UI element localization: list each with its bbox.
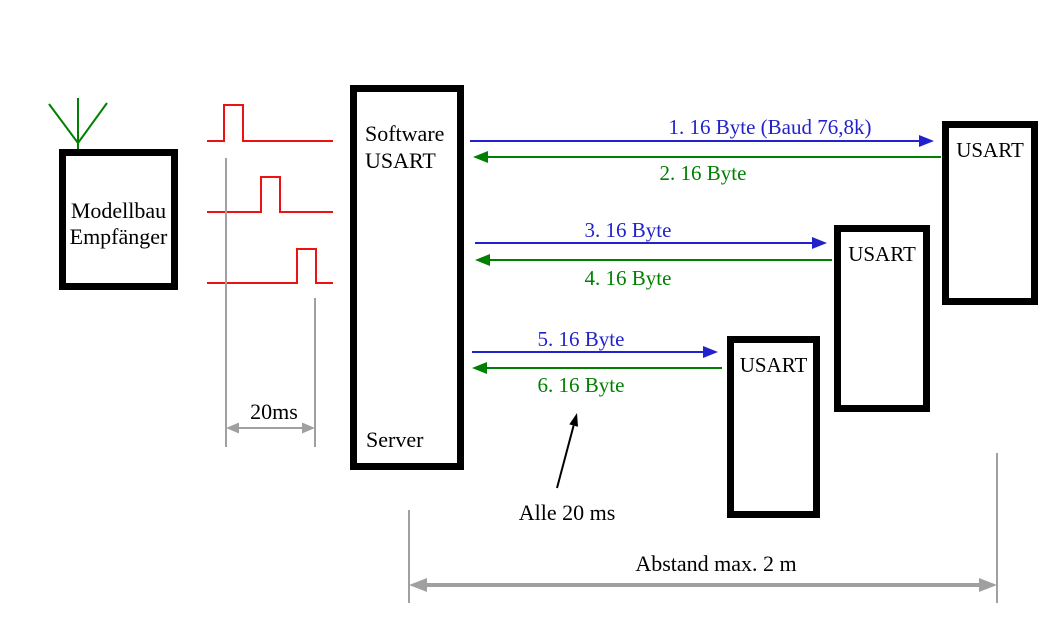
antenna-icon xyxy=(49,98,107,153)
message-label-2: 2. 16 Byte xyxy=(660,161,747,186)
distance-measure xyxy=(409,453,997,603)
receiver-label: Modellbau Empfänger xyxy=(70,190,168,250)
message-label-5: 5. 16 Byte xyxy=(538,327,625,352)
receiver-box: Modellbau Empfänger xyxy=(59,149,178,290)
usart-box-3: USART xyxy=(727,336,820,518)
usart-box-2: USART xyxy=(834,225,930,412)
diagram-canvas: Modellbau Empfänger Software USART Serve… xyxy=(0,0,1053,634)
server-box: Software USART Server xyxy=(350,85,464,470)
usart-box-3-label: USART xyxy=(734,343,813,378)
server-top-label: Software USART xyxy=(365,120,444,174)
arrow-right-head-icon xyxy=(979,578,997,592)
server-label-line1: Software xyxy=(365,121,444,146)
message-arrow-4 xyxy=(475,254,832,266)
distance-label: Abstand max. 2 m xyxy=(635,551,796,577)
receiver-label-line1: Modellbau xyxy=(71,198,166,223)
receiver-label-line2: Empfänger xyxy=(70,224,168,249)
pulse-interval-label: 20ms xyxy=(250,399,298,425)
message-label-4: 4. 16 Byte xyxy=(585,266,672,291)
usart-box-1-label: USART xyxy=(949,128,1031,163)
message-label-1: 1. 16 Byte (Baud 76,8k) xyxy=(669,115,872,140)
cycle-annotation-arrow xyxy=(557,413,578,488)
server-bottom-label: Server xyxy=(366,427,423,453)
pulse-waveform-1 xyxy=(207,105,333,141)
usart-box-1: USART xyxy=(942,121,1038,305)
arrow-right-head-icon xyxy=(302,423,315,434)
message-label-6: 6. 16 Byte xyxy=(538,373,625,398)
arrow-left-head-icon xyxy=(226,423,239,434)
usart-box-2-label: USART xyxy=(841,232,923,267)
cycle-label: Alle 20 ms xyxy=(519,500,616,526)
arrow-left-head-icon xyxy=(409,578,427,592)
server-label-line2: USART xyxy=(365,148,436,173)
message-label-3: 3. 16 Byte xyxy=(585,218,672,243)
